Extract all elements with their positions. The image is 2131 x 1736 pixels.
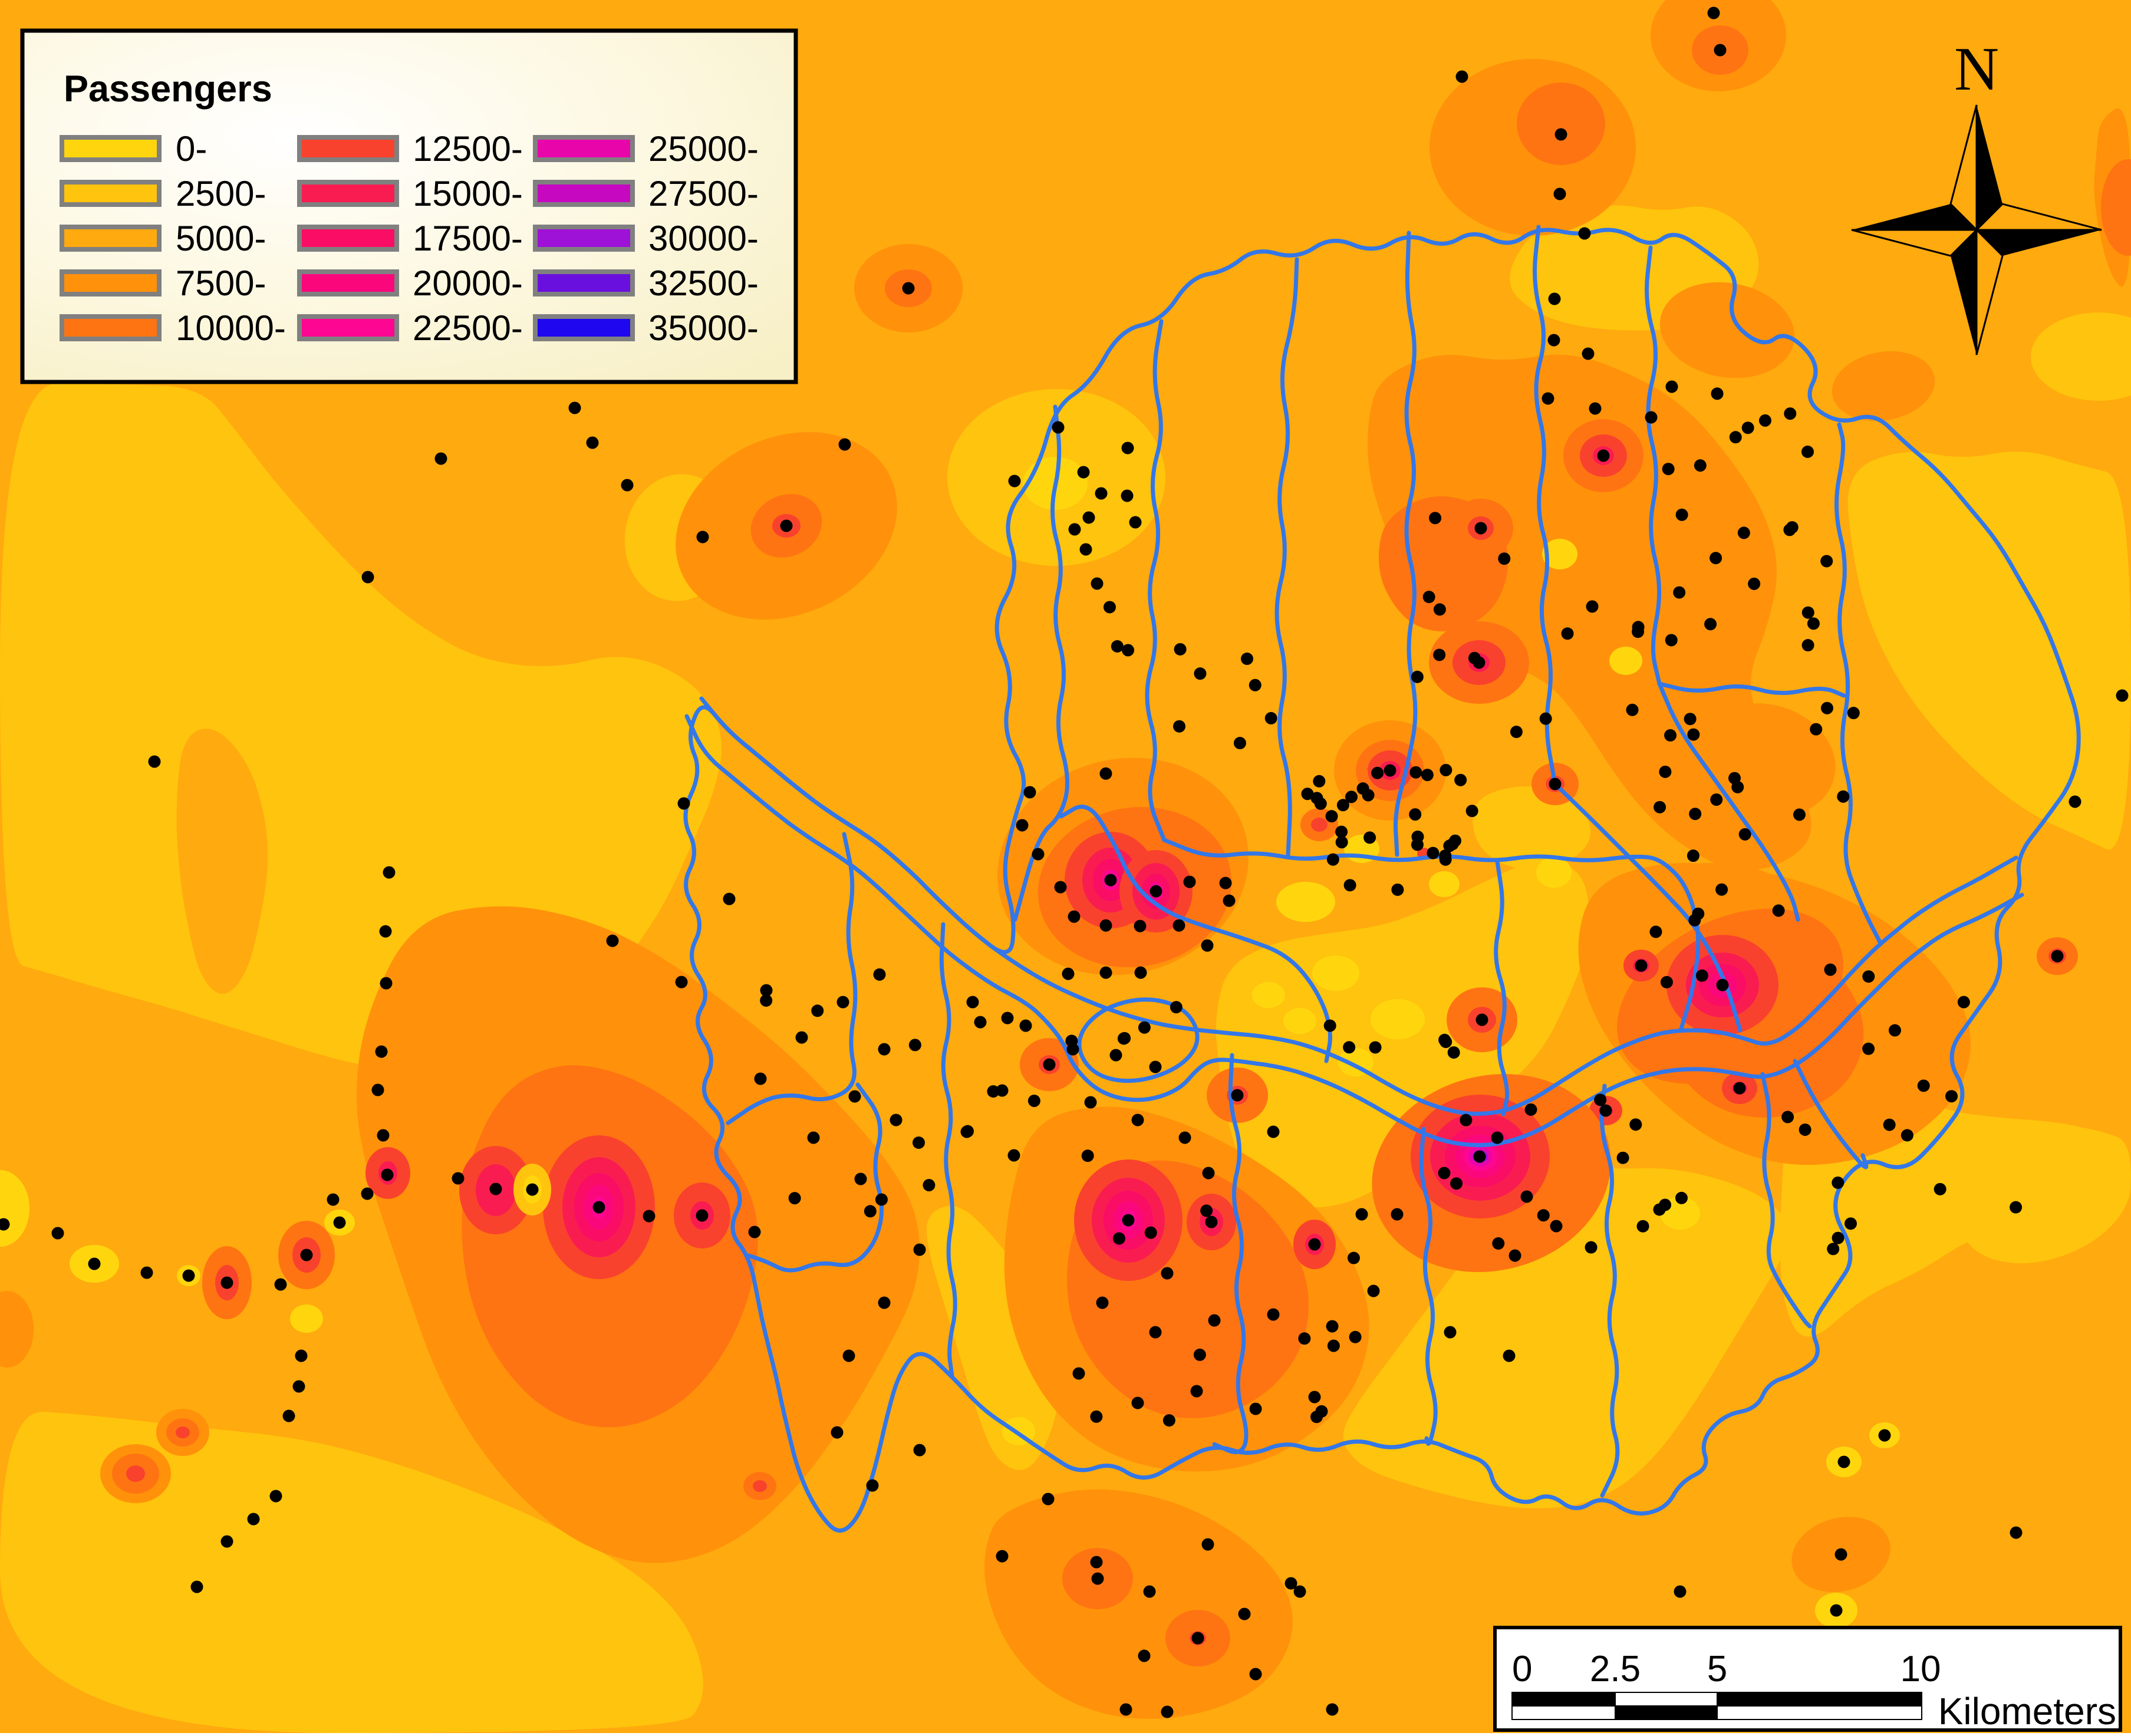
- svg-text:0-: 0-: [176, 129, 207, 169]
- svg-text:Kilometers: Kilometers: [1938, 1690, 2116, 1732]
- svg-text:N: N: [1954, 34, 1999, 103]
- svg-text:17500-: 17500-: [413, 219, 523, 258]
- svg-text:5: 5: [1707, 1649, 1727, 1689]
- svg-text:30000-: 30000-: [648, 219, 759, 258]
- svg-text:7500-: 7500-: [176, 263, 266, 303]
- svg-text:5000-: 5000-: [176, 219, 266, 258]
- svg-text:12500-: 12500-: [413, 129, 523, 169]
- svg-text:27500-: 27500-: [648, 174, 759, 213]
- svg-text:2500-: 2500-: [176, 174, 266, 213]
- svg-text:15000-: 15000-: [413, 174, 523, 213]
- svg-text:2.5: 2.5: [1590, 1649, 1641, 1689]
- svg-text:0: 0: [1512, 1649, 1532, 1689]
- svg-text:32500-: 32500-: [648, 263, 759, 303]
- svg-text:10: 10: [1901, 1649, 1941, 1689]
- svg-text:25000-: 25000-: [648, 129, 759, 169]
- svg-text:35000-: 35000-: [648, 308, 759, 348]
- svg-text:20000-: 20000-: [413, 263, 523, 303]
- svg-text:Passengers: Passengers: [64, 68, 272, 110]
- svg-text:22500-: 22500-: [413, 308, 523, 348]
- svg-text:10000-: 10000-: [176, 308, 286, 348]
